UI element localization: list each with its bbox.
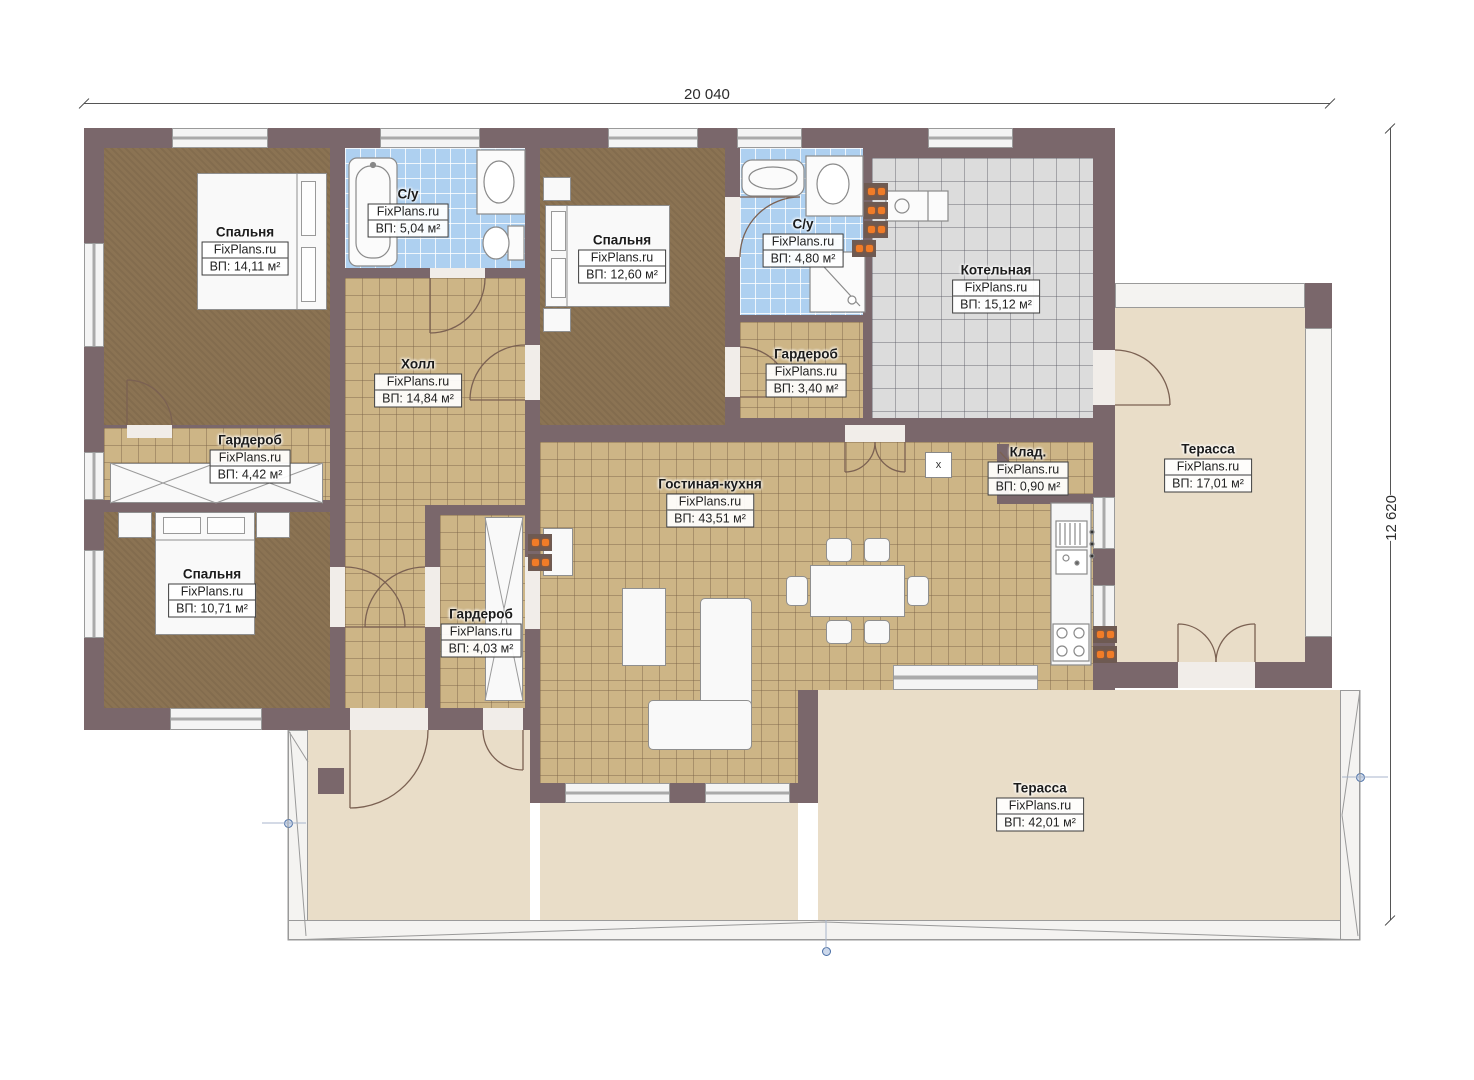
entry-door-opening	[350, 708, 428, 730]
nightstand	[256, 512, 290, 538]
room-area: ВП: 15,12 м²	[953, 297, 1039, 313]
watermark: FixPlans.ru	[369, 205, 448, 221]
room-title: Холл	[401, 357, 435, 372]
pillow	[551, 258, 566, 298]
window	[84, 452, 104, 500]
room-title: Гардероб	[218, 433, 282, 448]
room-title: Гардероб	[449, 607, 513, 622]
window	[893, 665, 1038, 690]
terrace-door-opening	[1093, 350, 1115, 405]
room-area: ВП: 4,80 м²	[764, 251, 843, 267]
sofa	[648, 700, 752, 750]
terrace2-railing-top	[1115, 283, 1305, 308]
watermark: FixPlans.ru	[442, 625, 521, 641]
radiator-icon	[1093, 646, 1117, 663]
nightstand	[118, 512, 152, 538]
radiator-icon	[1093, 626, 1117, 643]
room-title: Терасса	[1181, 442, 1235, 457]
niche-box: x	[925, 452, 952, 478]
room-area: ВП: 17,01 м²	[1165, 476, 1251, 492]
watermark: FixPlans.ru	[989, 463, 1068, 479]
room-title: С/у	[792, 217, 813, 232]
room-area: ВП: 4,03 м²	[442, 641, 521, 657]
room-area: ВП: 5,04 м²	[369, 221, 448, 237]
radiator-icon	[864, 183, 888, 200]
terrace2-railing-right	[1305, 328, 1332, 637]
radiator-icon	[852, 240, 876, 257]
watermark: FixPlans.ru	[211, 451, 290, 467]
nightstand	[543, 308, 571, 332]
room-area: ВП: 12,60 м²	[579, 267, 665, 283]
window	[737, 128, 802, 148]
chair	[864, 620, 890, 644]
room-area: ВП: 0,90 м²	[989, 479, 1068, 495]
floor-plan: 20 040 12 620	[0, 0, 1474, 1080]
hall-floor-lower	[345, 505, 425, 708]
top-dimension-label: 20 040	[680, 86, 734, 103]
reference-dot	[822, 947, 831, 956]
watermark: FixPlans.ru	[764, 235, 843, 251]
door-opening	[725, 347, 740, 397]
watermark: FixPlans.ru	[953, 281, 1039, 297]
door-opening	[845, 425, 905, 442]
room-area: ВП: 4,42 м²	[211, 467, 290, 483]
top-dimension-line	[84, 103, 1330, 104]
room-area: ВП: 10,71 м²	[169, 601, 255, 617]
radiator-icon	[528, 534, 552, 551]
room-label-wardrobe403: Гардероб FixPlans.ru ВП: 4,03 м²	[441, 607, 522, 658]
room-label-bathroom1: С/у FixPlans.ru ВП: 5,04 м²	[368, 187, 449, 238]
room-label-pantry: Клад. FixPlans.ru ВП: 0,90 м²	[988, 445, 1069, 496]
room-label-wardrobe442: Гардероб FixPlans.ru ВП: 4,42 м²	[210, 433, 291, 484]
window	[170, 708, 262, 730]
window	[705, 783, 790, 803]
french-door-opening	[1178, 662, 1255, 688]
door-opening	[330, 567, 345, 627]
terrace-floor-bottom-mid	[540, 803, 798, 920]
window	[608, 128, 698, 148]
reference-dot	[284, 819, 293, 828]
chair	[826, 620, 852, 644]
watermark: FixPlans.ru	[767, 365, 846, 381]
door-opening	[725, 197, 740, 257]
room-label-bathroom2: С/у FixPlans.ru ВП: 4,80 м²	[763, 217, 844, 268]
chair	[786, 576, 808, 606]
room-label-bedroom3: Спальня FixPlans.ru ВП: 10,71 м²	[168, 567, 256, 618]
room-area: ВП: 3,40 м²	[767, 381, 846, 397]
terrace2-post-top	[1305, 283, 1332, 328]
watermark: FixPlans.ru	[169, 585, 255, 601]
window	[172, 128, 268, 148]
terrace-floor-bottom-left	[308, 730, 530, 920]
porch-post	[318, 768, 344, 794]
door-opening	[425, 567, 440, 627]
window	[565, 783, 670, 803]
radiator-icon	[864, 202, 888, 219]
chair	[907, 576, 929, 606]
door-opening	[525, 345, 540, 400]
terrace-edge-right	[1340, 690, 1360, 940]
reference-dot	[1356, 773, 1365, 782]
room-label-living: Гостиная-кухня FixPlans.ru ВП: 43,51 м²	[658, 477, 761, 528]
terrace2-post-bottom	[1305, 637, 1332, 662]
room-title: Гостиная-кухня	[658, 477, 761, 492]
pillow	[551, 211, 566, 251]
window	[1093, 497, 1115, 549]
room-title: Котельная	[961, 263, 1032, 278]
radiator-icon	[864, 221, 888, 238]
room-title: Терасса	[1013, 781, 1067, 796]
watermark: FixPlans.ru	[997, 799, 1083, 815]
window	[84, 550, 104, 638]
door-opening	[430, 268, 485, 278]
watermark: FixPlans.ru	[1165, 460, 1251, 476]
window	[84, 243, 104, 347]
watermark: FixPlans.ru	[203, 243, 288, 259]
room-area: ВП: 43,51 м²	[667, 511, 753, 527]
room-title: Клад.	[1010, 445, 1047, 460]
nightstand	[543, 177, 571, 201]
right-dimension-label: 12 620	[1379, 495, 1404, 541]
room-label-boiler: Котельная FixPlans.ru ВП: 15,12 м²	[952, 263, 1040, 314]
room-area: ВП: 14,84 м²	[375, 391, 461, 407]
dining-table	[810, 565, 905, 617]
pillow	[163, 517, 201, 534]
pantry-wall-bottom	[997, 494, 1095, 504]
window	[928, 128, 1013, 148]
watermark: FixPlans.ru	[667, 495, 753, 511]
watermark: FixPlans.ru	[579, 251, 665, 267]
window	[380, 128, 480, 148]
chair	[826, 538, 852, 562]
room-label-bedroom2: Спальня FixPlans.ru ВП: 12,60 м²	[578, 233, 666, 284]
coffee-table	[622, 588, 666, 666]
room-area: ВП: 14,11 м²	[203, 259, 288, 275]
pillow	[207, 517, 245, 534]
room-title: Гардероб	[774, 347, 838, 362]
door-opening	[483, 708, 523, 730]
room-title: Спальня	[216, 225, 274, 240]
terrace-edge-left	[288, 730, 308, 940]
room-title: Спальня	[593, 233, 651, 248]
room-label-hall: Холл FixPlans.ru ВП: 14,84 м²	[374, 357, 462, 408]
room-label-terrace-right: Терасса FixPlans.ru ВП: 17,01 м²	[1164, 442, 1252, 493]
room-label-terrace-bottom: Терасса FixPlans.ru ВП: 42,01 м²	[996, 781, 1084, 832]
room-label-wardrobe340: Гардероб FixPlans.ru ВП: 3,40 м²	[766, 347, 847, 398]
radiator-icon	[528, 554, 552, 571]
room-title: С/у	[397, 187, 418, 202]
pillow	[301, 247, 316, 302]
chair	[864, 538, 890, 562]
room-title: Спальня	[183, 567, 241, 582]
pillow	[301, 181, 316, 236]
door-opening	[127, 425, 172, 438]
room-area: ВП: 42,01 м²	[997, 815, 1083, 831]
room-label-bedroom1: Спальня FixPlans.ru ВП: 14,11 м²	[202, 225, 289, 276]
terrace-edge-bottom	[288, 920, 1360, 940]
watermark: FixPlans.ru	[375, 375, 461, 391]
